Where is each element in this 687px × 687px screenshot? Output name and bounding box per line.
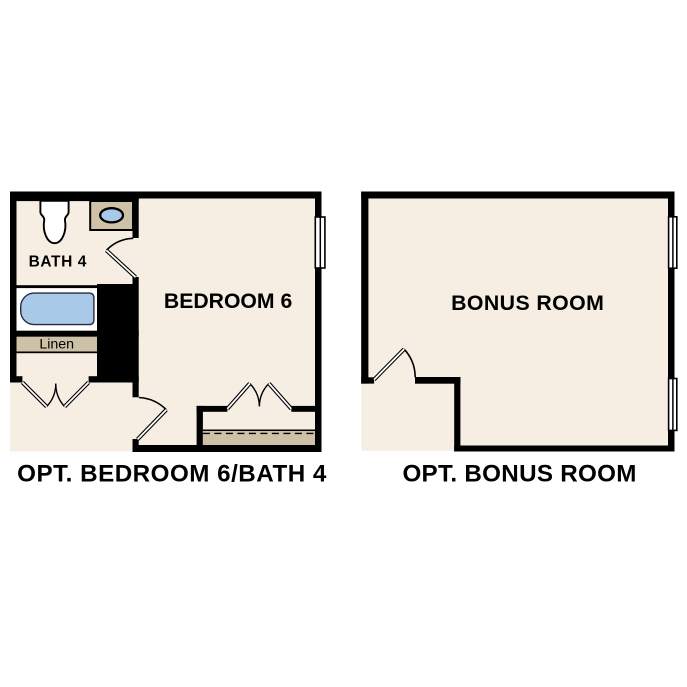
svg-text:OPT. BONUS ROOM: OPT. BONUS ROOM bbox=[402, 461, 636, 488]
svg-text:OPT. BEDROOM 6/BATH 4: OPT. BEDROOM 6/BATH 4 bbox=[17, 461, 327, 488]
svg-text:BONUS ROOM: BONUS ROOM bbox=[451, 291, 604, 315]
svg-text:Linen: Linen bbox=[39, 337, 74, 353]
svg-text:BATH 4: BATH 4 bbox=[29, 253, 87, 270]
svg-text:BEDROOM 6: BEDROOM 6 bbox=[164, 290, 293, 313]
